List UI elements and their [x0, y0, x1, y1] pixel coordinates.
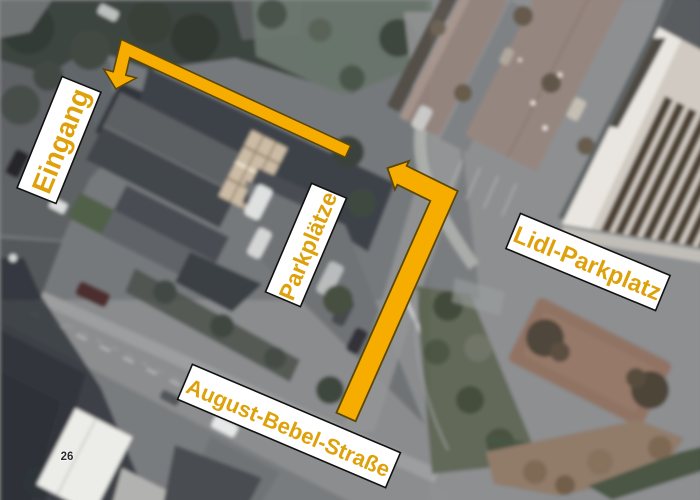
svg-text:26: 26 [61, 451, 74, 463]
